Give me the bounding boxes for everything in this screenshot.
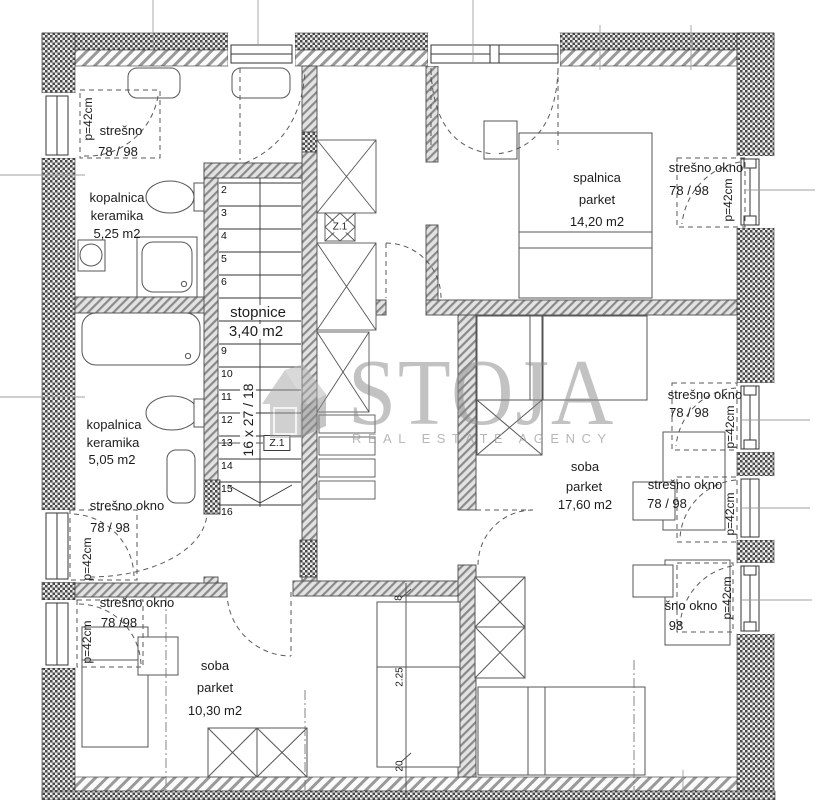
stair-number: 11 [221, 391, 232, 403]
stair-number: 13 [221, 437, 233, 449]
room-label-bath-lower-finish: keramika [87, 435, 140, 450]
roof-window-label: šno okno [665, 598, 718, 613]
stair-number: 15 [221, 483, 233, 495]
stair-number: 12 [221, 414, 233, 426]
room-label-right-name: soba [571, 459, 599, 474]
roof-window-label: strešno okno [648, 477, 722, 492]
roof-window-depth: p=42cm [80, 537, 94, 580]
roof-window-label: strešno [100, 123, 143, 138]
roof-window-depth: p=42cm [80, 620, 94, 663]
shaft-callout: Z.1 [263, 435, 290, 451]
room-label-bedroom-name: spalnica [573, 170, 621, 185]
room-label-bedroom-area: 14,20 m2 [570, 214, 624, 229]
roof-window-size: 78 /98 [101, 615, 137, 630]
room-label-bath-upper-name: kopalnica [90, 190, 145, 205]
roof-window-label: strešno okno [668, 387, 742, 402]
room-label-stairs-name: stopnice [228, 305, 288, 320]
wardrobe-column [317, 140, 376, 499]
room-label-bath-lower-name: kopalnica [87, 417, 142, 432]
roof-window-label: strešno okno [669, 160, 743, 175]
roof-window-label: strešno okno [90, 498, 164, 513]
roof-window-depth: p=42cm [723, 492, 737, 535]
shaft-label: Z.1 [332, 222, 348, 233]
room-label-right-area: 17,60 m2 [558, 497, 612, 512]
stair-number: 10 [221, 368, 233, 380]
staircase [218, 178, 301, 507]
room-label-stairs-area: 3,40 m2 [227, 324, 285, 339]
roof-window-size: 78 / 98 [98, 144, 138, 159]
roof-window-size: 78 / 98 [669, 405, 709, 420]
roof-window-label: strešno okno [100, 595, 174, 610]
roof-window-size: 78 / 98 [647, 496, 687, 511]
roof-window-depth: p=42cm [721, 178, 735, 221]
dimension-value: 8 [394, 595, 405, 601]
dimension-value: 2.25 [395, 667, 406, 686]
stair-number: 9 [221, 345, 227, 357]
room-label-right-finish: parket [566, 479, 602, 494]
room-label-bottom-finish: parket [197, 680, 233, 695]
room-label-bottom-name: soba [201, 658, 229, 673]
roof-window-depth: p=42cm [720, 576, 734, 619]
room-label-bath-lower-area: 5,05 m2 [89, 452, 136, 467]
stair-number: 6 [221, 276, 227, 288]
room-label-bath-upper-area: 5,25 m2 [94, 226, 141, 241]
stair-number: 4 [221, 230, 227, 242]
stair-number: 14 [221, 460, 233, 472]
floor-plan: kopalnica keramika 5,25 m2 spalnica park… [0, 0, 826, 800]
roof-window-depth: p=42cm [723, 405, 737, 448]
roof-window-depth: p=42cm [81, 97, 95, 140]
roof-window-size: 78 / 98 [669, 183, 709, 198]
stair-number: 2 [221, 184, 227, 196]
stair-number: 16 [221, 506, 233, 518]
roof-window-size: 78 / 98 [90, 520, 130, 535]
room-label-bedroom-finish: parket [579, 192, 615, 207]
stair-number: 5 [221, 253, 227, 265]
room-label-bath-upper-finish: keramika [91, 208, 144, 223]
roof-window-size: 98 [669, 618, 683, 633]
stair-number: 3 [221, 207, 227, 219]
stair-spec: 16 x 27 / 18 [240, 381, 256, 458]
dimension-value: 20 [395, 760, 406, 771]
room-label-bottom-area: 10,30 m2 [188, 703, 242, 718]
